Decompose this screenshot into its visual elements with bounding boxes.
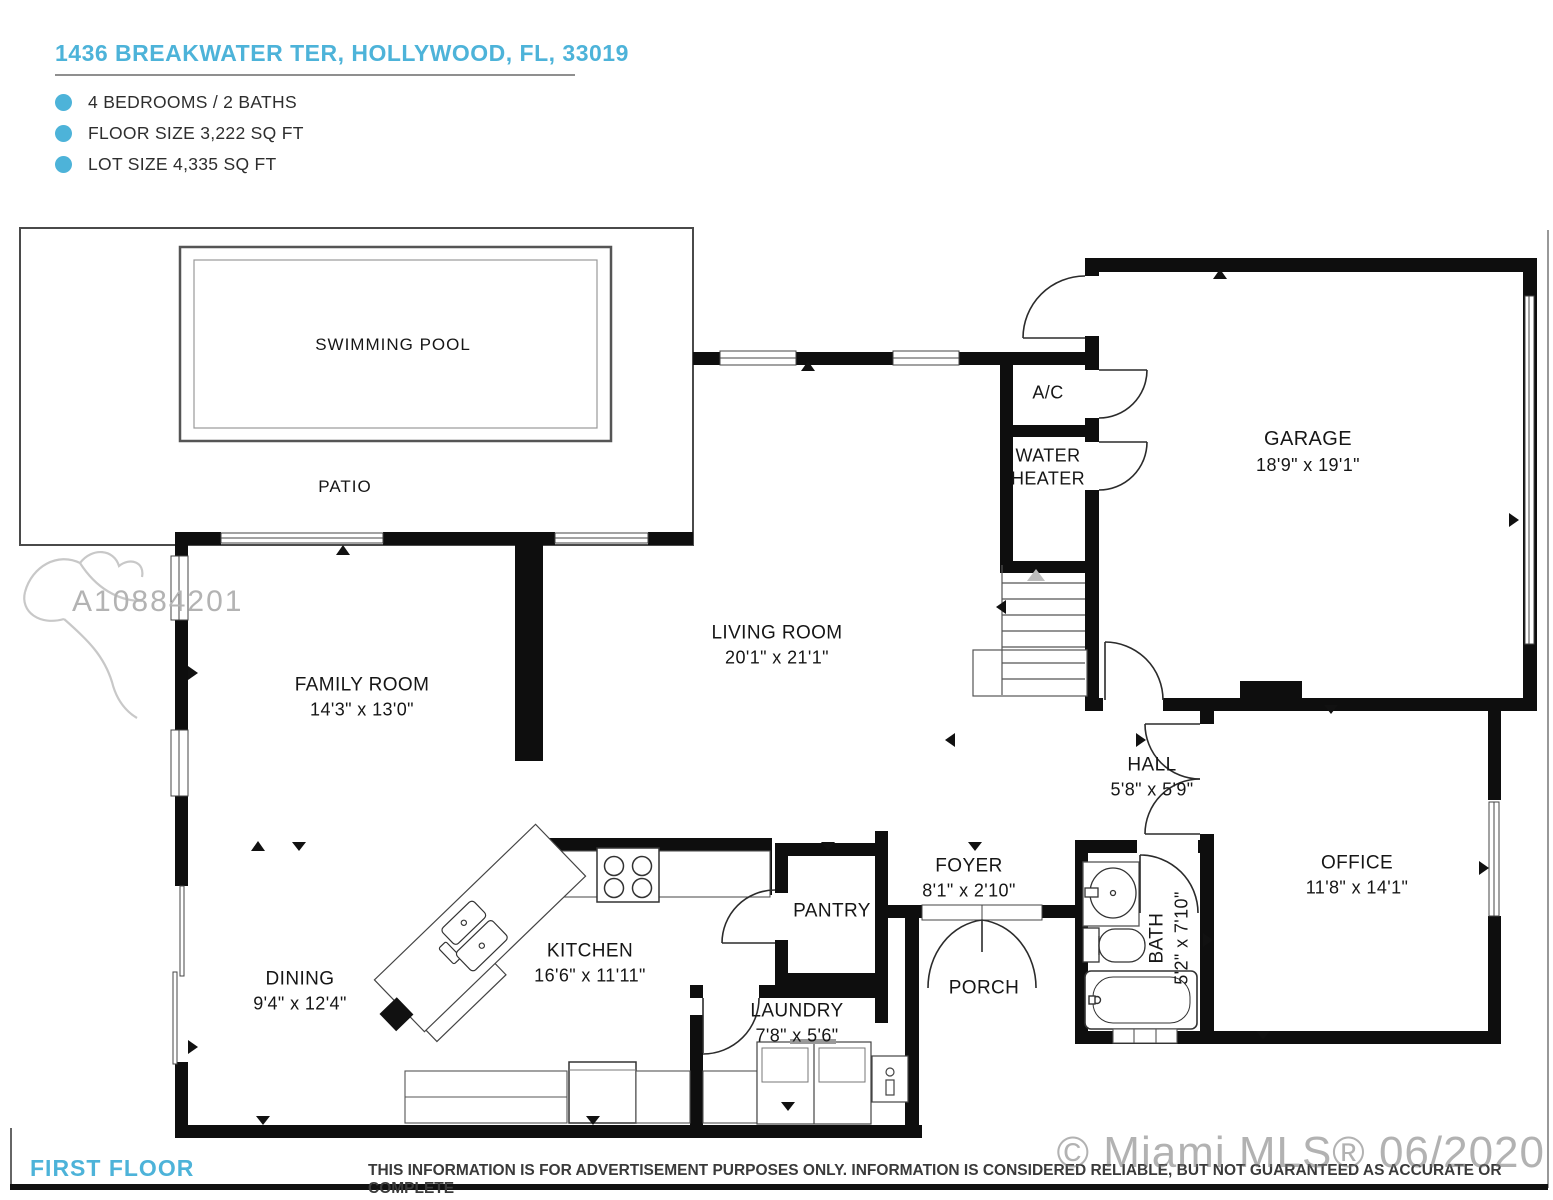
room-label-hall: HALL 5'8" x 5'9" xyxy=(1110,753,1193,802)
room-label-family-room: FAMILY ROOM 14'3" x 13'0" xyxy=(295,673,430,722)
kitchen-sink-icon xyxy=(360,824,586,1045)
floor-label: FIRST FLOOR xyxy=(30,1155,194,1182)
page-title: 1436 BREAKWATER TER, HOLLYWOOD, FL, 3301… xyxy=(55,40,629,67)
laundry-sink-icon xyxy=(872,1056,908,1102)
counter-icon xyxy=(703,1071,757,1123)
bird-watermark-icon xyxy=(24,552,142,718)
bullet-dot-icon xyxy=(55,125,72,142)
room-label-ac: A/C xyxy=(1032,381,1063,404)
mls-brand-watermark: © Miami MLS® 06/2020 xyxy=(1057,1128,1545,1178)
floorplan-page: 1436 BREAKWATER TER, HOLLYWOOD, FL, 3301… xyxy=(0,0,1553,1200)
fact-floor-size: FLOOR SIZE 3,222 SQ FT xyxy=(55,123,304,144)
fact-bedrooms: 4 BEDROOMS / 2 BATHS xyxy=(55,92,297,113)
bullet-dot-icon xyxy=(55,94,72,111)
bath-mat-icon xyxy=(1113,1029,1177,1043)
room-label-laundry: LAUNDRY 7'8" x 5'6" xyxy=(750,999,843,1048)
room-label-garage: GARAGE 18'9" x 19'1" xyxy=(1256,426,1360,478)
room-label-bath: BATH 5'2" x 7'10" xyxy=(1145,891,1194,985)
room-label-porch: PORCH xyxy=(949,977,1020,1002)
title-underline xyxy=(55,74,575,76)
toilet-icon xyxy=(1083,928,1145,962)
stove-icon xyxy=(597,848,659,902)
fact-text: FLOOR SIZE 3,222 SQ FT xyxy=(88,123,304,144)
room-label-water-heater: WATER HEATER xyxy=(992,445,1104,490)
washer-dryer-icon xyxy=(757,1039,871,1124)
bullet-dot-icon xyxy=(55,156,72,173)
room-label-office: OFFICE 11'8" x 14'1" xyxy=(1306,851,1409,900)
mls-number-watermark: A10884201 xyxy=(72,585,244,619)
room-label-dining: DINING 9'4" x 12'4" xyxy=(253,967,347,1016)
room-label-swimming-pool: SWIMMING POOL xyxy=(315,334,471,356)
fact-text: 4 BEDROOMS / 2 BATHS xyxy=(88,92,297,113)
fridge-icon xyxy=(569,1062,636,1123)
room-label-pantry: PANTRY xyxy=(793,900,871,925)
bath-sink-icon xyxy=(1083,862,1139,926)
counter-icon xyxy=(636,1071,690,1123)
room-label-patio: PATIO xyxy=(318,476,372,498)
room-label-living-room: LIVING ROOM 20'1" x 21'1" xyxy=(711,621,842,670)
stairs xyxy=(973,565,1087,696)
fact-lot-size: LOT SIZE 4,335 SQ FT xyxy=(55,154,277,175)
fact-text: LOT SIZE 4,335 SQ FT xyxy=(88,154,277,175)
room-label-kitchen: KITCHEN 16'6" x 11'11" xyxy=(534,939,646,988)
room-label-foyer: FOYER 8'1" x 2'10" xyxy=(922,854,1016,903)
